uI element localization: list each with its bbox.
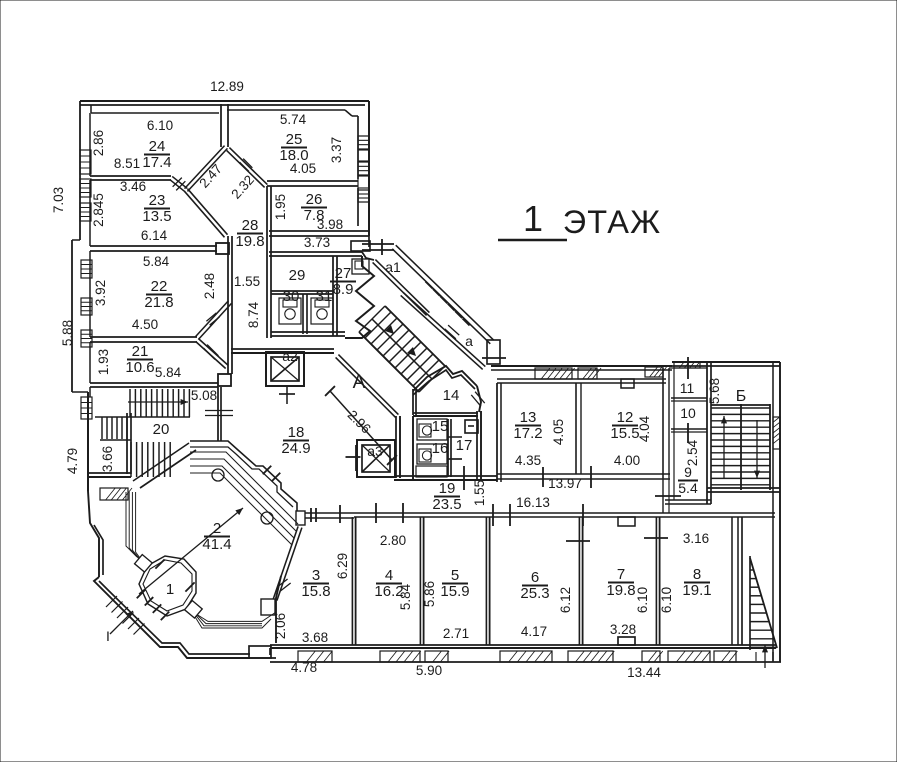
svg-text:4: 4 [385, 567, 393, 584]
svg-text:4.05: 4.05 [551, 419, 566, 445]
svg-text:30: 30 [283, 288, 300, 305]
svg-text:5.84: 5.84 [155, 365, 182, 380]
svg-text:А: А [353, 372, 366, 393]
svg-text:3: 3 [312, 567, 320, 584]
svg-text:5.68: 5.68 [707, 378, 722, 404]
svg-text:a1: a1 [385, 259, 401, 275]
svg-text:23.5: 23.5 [432, 496, 461, 513]
svg-text:8.51: 8.51 [114, 156, 140, 171]
svg-text:14: 14 [443, 387, 460, 404]
svg-text:3.66: 3.66 [100, 446, 115, 472]
svg-text:4.35: 4.35 [515, 453, 541, 468]
svg-text:5.4: 5.4 [678, 480, 698, 496]
svg-text:15.9: 15.9 [440, 583, 469, 600]
svg-text:5.08: 5.08 [191, 388, 217, 403]
svg-text:17.2: 17.2 [513, 425, 542, 442]
svg-text:16.13: 16.13 [516, 495, 550, 510]
svg-text:5.74: 5.74 [280, 112, 307, 127]
svg-text:12: 12 [617, 409, 634, 426]
svg-text:3.28: 3.28 [610, 622, 636, 637]
svg-text:2.86: 2.86 [91, 130, 106, 156]
svg-text:4.50: 4.50 [132, 317, 158, 332]
svg-text:10: 10 [680, 405, 696, 421]
svg-text:2.48: 2.48 [202, 273, 217, 299]
svg-text:31: 31 [316, 288, 333, 305]
svg-text:25.3: 25.3 [520, 585, 549, 602]
svg-text:26: 26 [306, 191, 323, 208]
svg-text:15: 15 [432, 418, 449, 435]
svg-text:20: 20 [153, 421, 170, 438]
svg-text:13.5: 13.5 [142, 208, 171, 225]
svg-text:5.86: 5.86 [422, 581, 437, 607]
svg-text:27: 27 [335, 265, 352, 282]
svg-text:4.78: 4.78 [291, 660, 317, 675]
svg-text:3.46: 3.46 [120, 179, 146, 194]
svg-text:6: 6 [531, 569, 539, 586]
svg-text:3.37: 3.37 [329, 137, 344, 163]
svg-text:2.71: 2.71 [443, 626, 469, 641]
svg-text:6.29: 6.29 [335, 553, 350, 579]
svg-text:23: 23 [149, 192, 166, 209]
svg-text:3.98: 3.98 [317, 217, 343, 232]
svg-text:17: 17 [456, 437, 473, 454]
svg-text:1.95: 1.95 [273, 194, 288, 220]
svg-text:4.17: 4.17 [521, 624, 547, 639]
svg-text:1.55: 1.55 [234, 274, 260, 289]
svg-text:Б: Б [736, 388, 747, 405]
svg-text:I: I [106, 628, 110, 644]
svg-text:2: 2 [213, 520, 221, 537]
svg-text:17.4: 17.4 [142, 154, 171, 171]
svg-text:8: 8 [693, 566, 701, 583]
svg-text:10.6: 10.6 [125, 359, 154, 376]
svg-text:11: 11 [680, 380, 695, 396]
svg-text:2.06: 2.06 [273, 613, 288, 639]
svg-text:13.44: 13.44 [627, 665, 661, 680]
svg-text:29: 29 [289, 267, 306, 284]
svg-text:41.4: 41.4 [202, 536, 231, 553]
svg-text:4.00: 4.00 [614, 453, 640, 468]
svg-text:19.1: 19.1 [682, 582, 711, 599]
svg-text:22: 22 [151, 278, 168, 295]
svg-text:3.92: 3.92 [93, 280, 108, 306]
svg-text:6.10: 6.10 [635, 587, 650, 613]
svg-text:15.8: 15.8 [301, 583, 330, 600]
svg-text:5.88: 5.88 [60, 320, 75, 346]
svg-text:3.16: 3.16 [683, 531, 709, 546]
svg-text:2.845: 2.845 [91, 193, 106, 227]
svg-text:5.84: 5.84 [398, 583, 413, 610]
svg-text:12.89: 12.89 [210, 79, 244, 94]
svg-text:8.9: 8.9 [333, 281, 354, 298]
svg-text:a3: a3 [367, 443, 383, 459]
svg-text:18: 18 [288, 424, 305, 441]
svg-text:1: 1 [166, 581, 174, 598]
svg-text:19.8: 19.8 [235, 233, 264, 250]
svg-text:4.79: 4.79 [65, 448, 80, 474]
svg-text:3.73: 3.73 [304, 235, 330, 250]
svg-text:24.9: 24.9 [281, 440, 310, 457]
svg-text:15.5: 15.5 [610, 425, 639, 442]
svg-text:a: a [465, 333, 473, 349]
svg-text:19.8: 19.8 [606, 582, 635, 599]
svg-text:4.05: 4.05 [290, 161, 316, 176]
svg-text:6.10: 6.10 [659, 587, 674, 613]
svg-text:3.68: 3.68 [302, 630, 328, 645]
svg-text:1: 1 [523, 198, 543, 239]
svg-text:19: 19 [439, 480, 456, 497]
svg-text:a2: a2 [282, 348, 298, 364]
svg-text:6.10: 6.10 [147, 118, 173, 133]
svg-text:8.74: 8.74 [246, 301, 261, 328]
svg-text:24: 24 [149, 138, 166, 155]
svg-text:25: 25 [286, 131, 303, 148]
svg-text:1.55: 1.55 [472, 480, 487, 506]
svg-text:28: 28 [242, 217, 259, 234]
svg-text:16: 16 [432, 440, 449, 457]
svg-text:5.84: 5.84 [143, 254, 170, 269]
svg-text:6.14: 6.14 [141, 228, 168, 243]
svg-text:21.8: 21.8 [144, 294, 173, 311]
svg-text:21: 21 [132, 343, 149, 360]
svg-text:4.04: 4.04 [637, 415, 652, 442]
svg-text:2.54: 2.54 [685, 439, 700, 466]
svg-text:2.80: 2.80 [380, 533, 406, 548]
svg-text:13: 13 [520, 409, 537, 426]
svg-text:13.97: 13.97 [548, 476, 582, 491]
svg-text:ЭТАЖ: ЭТАЖ [563, 204, 662, 240]
svg-text:1.93: 1.93 [96, 349, 111, 375]
svg-text:7.03: 7.03 [51, 187, 66, 213]
svg-text:5: 5 [451, 567, 459, 584]
svg-text:5.90: 5.90 [416, 663, 442, 678]
svg-text:7: 7 [617, 566, 625, 583]
svg-text:6.12: 6.12 [558, 587, 573, 613]
